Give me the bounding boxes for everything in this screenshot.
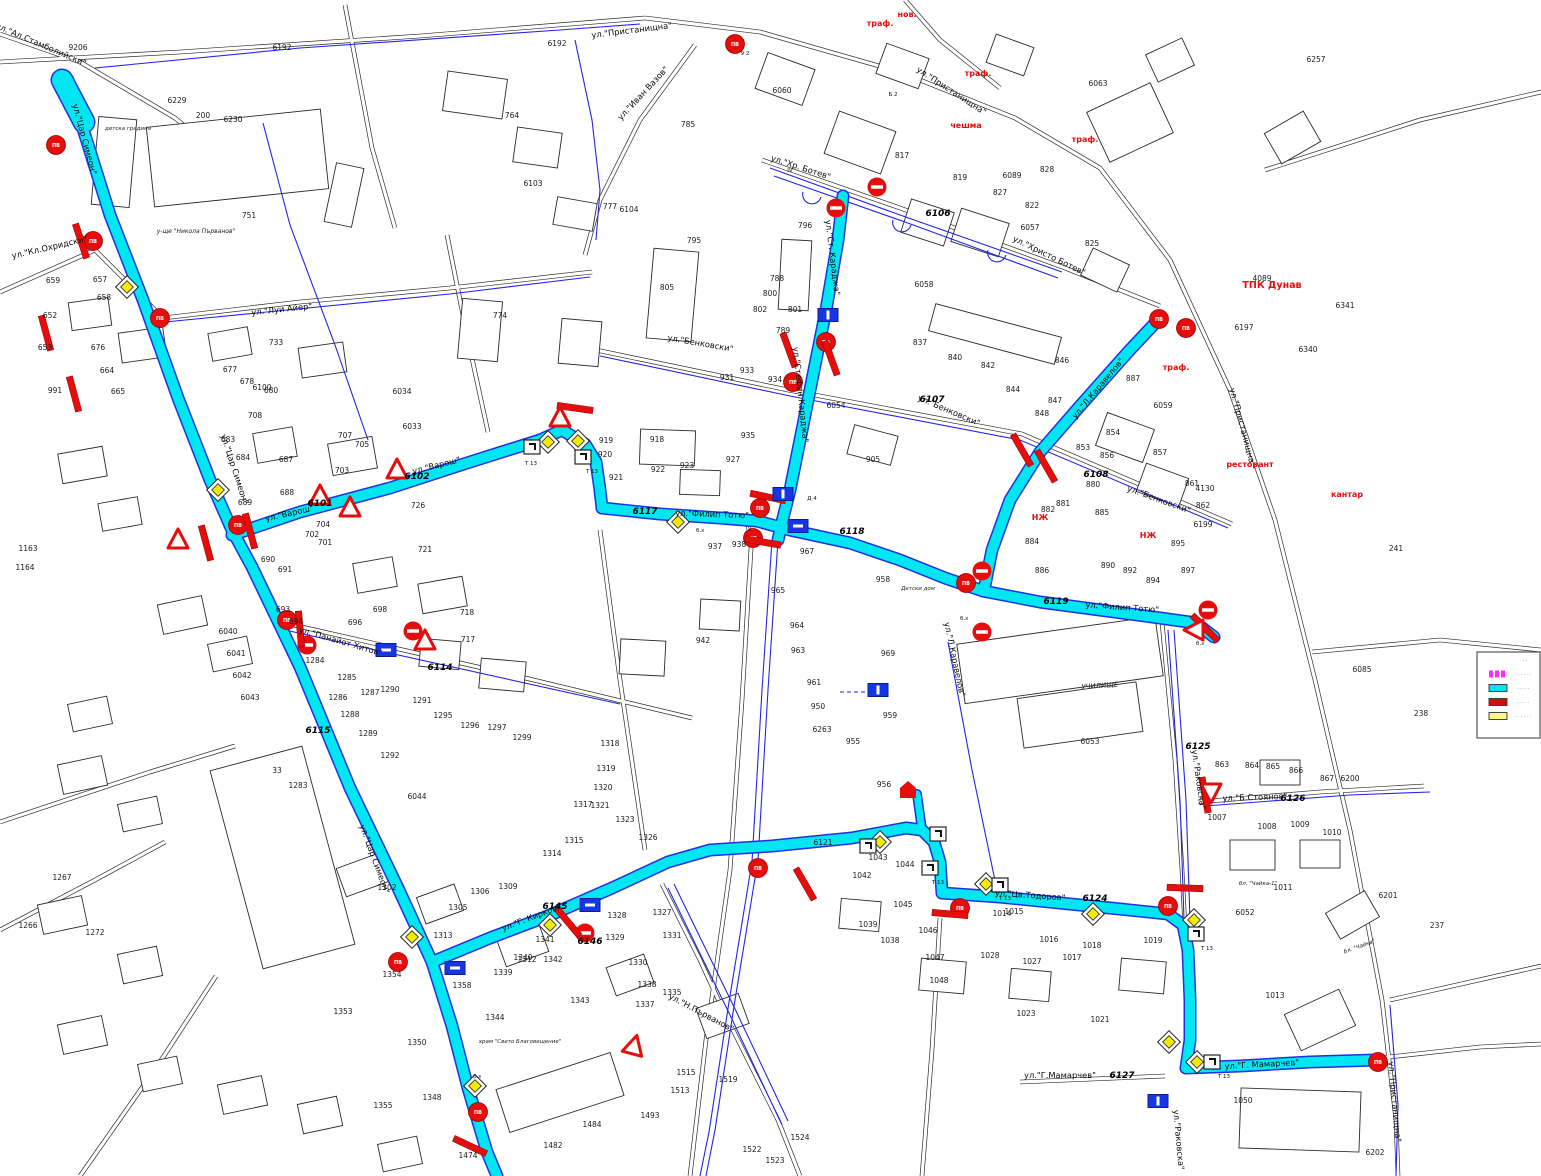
parcel-number: 1482: [543, 1141, 562, 1150]
utility-box-marker[interactable]: [788, 520, 808, 533]
micro-label: IV: [787, 168, 793, 174]
map-canvas[interactable]: ПВПВПВПВПВПВПВПВПВПВПВПВПВПВПВПВПВПВПВ92…: [0, 0, 1541, 1176]
parcel-number: 1009: [1290, 820, 1309, 829]
parcel-number: 1266: [18, 921, 37, 930]
utility-red-label: траф.: [867, 19, 894, 28]
pv-marker-label: ПВ: [394, 960, 402, 966]
parcel-number: 6089: [1002, 171, 1021, 180]
parcel-number: 864: [1245, 761, 1260, 770]
parcel-number: 6200: [1340, 774, 1359, 783]
parcel-number: 933: [740, 366, 755, 375]
parcel-number: 1289: [358, 729, 377, 738]
utility-red-label: НЖ: [1032, 513, 1049, 522]
hydrant-symbol[interactable]: [922, 861, 938, 875]
parcel-number: 1309: [498, 882, 517, 891]
parcel-number: 1353: [333, 1007, 352, 1016]
micro-label: Т 13: [998, 896, 1012, 902]
parcel-number: 6042: [232, 671, 251, 680]
parcel-number: 659: [46, 276, 61, 285]
parcel-number: 881: [1056, 499, 1071, 508]
parcel-number: 842: [981, 361, 996, 370]
parcel-number: 1329: [605, 933, 624, 942]
parcel-number: 1027: [1022, 957, 1041, 966]
parcel-number: 934: [768, 375, 783, 384]
parcel-number: 1013: [1265, 991, 1284, 1000]
parcel-number: 846: [1055, 356, 1070, 365]
utility-red-label: нов.: [897, 10, 916, 19]
parcel-number: 1290: [380, 685, 399, 694]
city-utility-map[interactable]: ПВПВПВПВПВПВПВПВПВПВПВПВПВПВПВПВПВПВПВ92…: [0, 0, 1541, 1176]
parcel-number: 1163: [18, 544, 37, 553]
parcel-number: 837: [913, 338, 928, 347]
parcel-number: 1323: [615, 815, 634, 824]
hydrant-pv-marker[interactable]: ПВ: [469, 1103, 488, 1122]
parcel-number: 1330: [628, 958, 647, 967]
parcel-number: 923: [680, 461, 695, 470]
parcel-number: 702: [305, 530, 320, 539]
parcel-number: 959: [883, 711, 898, 720]
parcel-number: 1023: [1016, 1009, 1035, 1018]
street-segment-id: 6127: [1109, 1071, 1135, 1081]
utility-box-marker[interactable]: [1148, 1095, 1168, 1108]
street-segment-id: 6106: [925, 209, 950, 219]
parcel-number: 241: [1389, 544, 1404, 553]
parcel-number: 1299: [512, 733, 531, 742]
utility-box-marker[interactable]: [580, 899, 600, 912]
parcel-number: 895: [1171, 539, 1186, 548]
parcel-number: 1314: [542, 849, 561, 858]
parcel-number: 892: [1123, 566, 1138, 575]
building: [1009, 968, 1051, 1001]
legend-item-label: · · · · · ·: [1515, 673, 1531, 678]
parcel-number: 1007: [1207, 813, 1226, 822]
hydrant-symbol[interactable]: [860, 839, 876, 853]
parcel-number: 1331: [662, 931, 681, 940]
parcel-number: 1048: [929, 976, 948, 985]
parcel-number: 1327: [652, 908, 671, 917]
parcel-number: 652: [43, 311, 58, 320]
parcel-number: 1306: [470, 887, 489, 896]
parcel-number: 964: [790, 621, 805, 630]
parcel-number: 1043: [868, 853, 887, 862]
parcel-number: 857: [1153, 448, 1168, 457]
parcel-number: 937: [708, 542, 723, 551]
parcel-number: 1493: [640, 1111, 659, 1120]
parcel-number: 6340: [1298, 345, 1317, 354]
parcel-number: 1484: [582, 1120, 601, 1129]
hydrant-pv-marker[interactable]: ПВ: [1369, 1053, 1388, 1072]
hydrant-symbol[interactable]: [930, 827, 946, 841]
parcel-number: 665: [111, 387, 126, 396]
building: [680, 469, 721, 495]
parcel-number: 774: [493, 311, 508, 320]
parcel-number: 1008: [1257, 822, 1276, 831]
hydrant-symbol[interactable]: [1188, 927, 1204, 941]
parcel-number: 921: [609, 473, 624, 482]
parcel-number: 819: [953, 173, 968, 182]
parcel-number: 885: [1095, 508, 1110, 517]
parcel-number: 862: [1196, 501, 1211, 510]
parcel-number: 1017: [1062, 953, 1081, 962]
parcel-number: 884: [1025, 537, 1040, 546]
hydrant-pv-marker[interactable]: ПВ: [749, 859, 768, 878]
parcel-number: 6033: [402, 422, 421, 431]
building: [479, 658, 526, 692]
parcel-number: 6052: [1235, 908, 1254, 917]
building: [646, 248, 699, 342]
no-entry-sign[interactable]: [1199, 601, 1218, 620]
parcel-number: 707: [338, 431, 353, 440]
hydrant-symbol[interactable]: [1204, 1055, 1220, 1069]
parcel-number: 701: [318, 538, 333, 547]
parcel-number: 1295: [433, 711, 452, 720]
parcel-number: 1039: [858, 920, 877, 929]
parcel-number: 1285: [337, 673, 356, 682]
legend-item-label: · · · · · ·: [1515, 715, 1531, 720]
parcel-number: 721: [418, 545, 433, 554]
utility-red-label: траф.: [1072, 135, 1099, 144]
parcel-number: 33: [272, 766, 282, 775]
parcel-number: 935: [741, 431, 756, 440]
building: [513, 127, 562, 168]
valve-bar-marker[interactable]: [1167, 884, 1203, 892]
place-label: детска градина: [104, 126, 152, 132]
no-entry-sign[interactable]: [973, 562, 992, 581]
parcel-number: 6199: [1193, 520, 1212, 529]
parcel-number: 6057: [1020, 223, 1039, 232]
parcel-number: 6230: [223, 115, 242, 124]
micro-label: Т 13: [1217, 1074, 1231, 1080]
parcel-number: 967: [800, 547, 815, 556]
pv-marker-label: ПВ: [1182, 326, 1190, 332]
parcel-number: 922: [651, 465, 666, 474]
pv-marker-label: ПВ: [1164, 904, 1172, 910]
parcel-number: 863: [1215, 760, 1230, 769]
street-segment-id: 6124: [1082, 894, 1107, 904]
parcel-number: 237: [1430, 921, 1445, 930]
parcel-number: 1524: [790, 1133, 809, 1142]
parcel-number: 687: [279, 455, 294, 464]
parcel-number: 1319: [596, 764, 615, 773]
parcel-number: 1288: [340, 710, 359, 719]
parcel-number: 828: [1040, 165, 1055, 174]
hydrant-pv-marker[interactable]: ПВ: [1150, 310, 1169, 329]
parcel-number: 887: [1126, 374, 1141, 383]
parcel-number: 1313: [433, 931, 452, 940]
parcel-number: 1019: [1143, 936, 1162, 945]
parcel-number: 6063: [1088, 79, 1107, 88]
parcel-number: 676: [91, 343, 106, 352]
parcel-number: 822: [1025, 201, 1040, 210]
street-segment-id: 6115: [305, 726, 330, 736]
parcel-number: 1038: [880, 936, 899, 945]
street-label: ул."Г.Мамарчев": [1024, 1070, 1096, 1080]
parcel-number: 1358: [452, 981, 471, 990]
legend-box: [1477, 652, 1540, 738]
parcel-number: 919: [599, 436, 614, 445]
parcel-number: 6104: [619, 205, 638, 214]
parcel-number: 955: [846, 737, 861, 746]
parcel-number: 1522: [742, 1145, 761, 1154]
utility-red-label: ресторант: [1226, 460, 1274, 469]
parcel-number: 956: [877, 780, 892, 789]
building: [1300, 840, 1340, 868]
parcel-number: 958: [876, 575, 891, 584]
parcel-number: 6043: [240, 693, 259, 702]
parcel-number: 718: [460, 608, 475, 617]
parcel-number: 6257: [1306, 55, 1325, 64]
parcel-number: 1042: [852, 871, 871, 880]
parcel-number: 726: [411, 501, 426, 510]
parcel-number: 6121: [813, 838, 832, 847]
parcel-number: 1047: [925, 953, 944, 962]
parcel-number: 1343: [570, 996, 589, 1005]
parcel-number: 1046: [918, 926, 937, 935]
parcel-number: 965: [771, 586, 786, 595]
parcel-number: 950: [811, 702, 826, 711]
building: [1119, 958, 1167, 994]
place-label: бл. "Чайка-1": [1239, 881, 1277, 887]
parcel-number: 1354: [382, 970, 401, 979]
parcel-number: 1341: [535, 935, 554, 944]
parcel-number: 1338: [637, 980, 656, 989]
parcel-number: 1519: [718, 1075, 737, 1084]
legend-item-label: · · · · ·: [1517, 687, 1530, 692]
legend-swatch: [1489, 713, 1507, 720]
hydrant-symbol[interactable]: [575, 450, 591, 464]
no-entry-sign[interactable]: [868, 178, 887, 197]
parcel-number: 1342: [543, 955, 562, 964]
legend-swatch: [1489, 685, 1507, 692]
parcel-number: 894: [1146, 576, 1161, 585]
parcel-number: 867: [1320, 774, 1335, 783]
pv-marker-label: ПВ: [1374, 1060, 1382, 1066]
hydrant-pv-marker[interactable]: ПВ: [1177, 319, 1196, 338]
micro-label: б.з: [960, 616, 968, 622]
parcel-number: 1317: [573, 800, 592, 809]
parcel-number: 825: [1085, 239, 1100, 248]
hydrant-symbol[interactable]: [524, 440, 540, 454]
parcel-number: 1297: [487, 723, 506, 732]
parcel-number: 6341: [1335, 301, 1354, 310]
pv-marker-label: ПВ: [474, 1110, 482, 1116]
network-segment: [917, 794, 922, 830]
utility-red-label: НЖ: [1140, 531, 1157, 540]
parcel-number: 853: [1076, 443, 1091, 452]
parcel-number: 866: [1289, 766, 1304, 775]
parcel-number: 704: [316, 520, 331, 529]
parcel-number: 1318: [600, 739, 619, 748]
parcel-number: 691: [278, 565, 293, 574]
pv-marker-label: ПВ: [89, 239, 97, 245]
parcel-number: 200: [196, 111, 211, 120]
no-entry-sign[interactable]: [973, 623, 992, 642]
building: [68, 297, 112, 330]
parcel-number: 827: [993, 188, 1008, 197]
parcel-number: 1344: [485, 1013, 504, 1022]
building: [353, 557, 398, 593]
parcel-number: 1021: [1090, 1015, 1109, 1024]
parcel-number: 961: [807, 678, 822, 687]
hydrant-pv-marker[interactable]: ПВ: [751, 499, 770, 518]
parcel-number: 788: [770, 274, 785, 283]
parcel-number: 840: [948, 353, 963, 362]
parcel-number: 1018: [1082, 941, 1101, 950]
parcel-number: 1287: [360, 688, 379, 697]
parcel-number: 796: [798, 221, 813, 230]
parcel-number: 802: [753, 305, 768, 314]
micro-label: Д 4: [807, 496, 817, 502]
parcel-number: 969: [881, 649, 896, 658]
hydrant-pv-marker[interactable]: ПВ: [47, 136, 66, 155]
parcel-number: 1337: [635, 1000, 654, 1009]
parcel-number: 920: [598, 450, 613, 459]
parcel-number: 1045: [893, 900, 912, 909]
utility-box-marker[interactable]: [773, 488, 793, 501]
parcel-number: 6263: [812, 725, 831, 734]
utility-box-marker[interactable]: [818, 309, 838, 322]
hydrant-pv-marker[interactable]: ПВ: [389, 953, 408, 972]
legend-swatch: [1489, 699, 1507, 706]
parcel-number: 1296: [460, 721, 479, 730]
parcel-number: 848: [1035, 409, 1050, 418]
parcel-number: 6202: [1365, 1148, 1384, 1157]
utility-red-label: траф.: [1163, 363, 1190, 372]
building: [558, 318, 602, 366]
place-label: у-ще "Никола Първанов": [156, 228, 236, 235]
parcel-number: 677: [223, 365, 238, 374]
parcel-number: 657: [93, 275, 108, 284]
parcel-number: 1339: [493, 968, 512, 977]
parcel-number: 1015: [1004, 907, 1023, 916]
pv-marker-label: ПВ: [956, 906, 964, 912]
pv-marker-label: ПВ: [1155, 317, 1163, 323]
micro-label: б.з: [1196, 641, 1204, 647]
micro-label: Б 2: [888, 92, 897, 98]
parcel-number: 6053: [1080, 737, 1099, 746]
utility-box-marker[interactable]: [445, 962, 465, 975]
street-segment-id: 6117: [632, 507, 658, 517]
parcel-number: 1321: [590, 801, 609, 810]
street-segment-id: 6118: [839, 527, 864, 537]
parcel-number: 6054: [826, 401, 845, 410]
parcel-number: 795: [687, 236, 702, 245]
parcel-number: 890: [1101, 561, 1116, 570]
parcel-number: 6100: [252, 383, 271, 392]
utility-red-label: ТПК Дунав: [1242, 280, 1301, 291]
parcel-number: 1513: [670, 1086, 689, 1095]
street-segment-id: 6119: [1043, 597, 1068, 607]
parcel-number: 905: [866, 455, 881, 464]
parcel-number: 1010: [1322, 828, 1341, 837]
pv-marker-label: ПВ: [756, 506, 764, 512]
street-segment-id: 6146: [577, 937, 602, 947]
parcel-number: 1326: [638, 833, 657, 842]
parcel-number: 6103: [523, 179, 542, 188]
pv-marker-label: ПВ: [962, 581, 970, 587]
hydrant-pv-marker[interactable]: ПВ: [957, 574, 976, 593]
parcel-number: 6040: [218, 627, 237, 636]
parcel-number: 1305: [448, 903, 467, 912]
parcel-number: 854: [1106, 428, 1121, 437]
parcel-number: 847: [1048, 396, 1063, 405]
parcel-number: 918: [650, 435, 665, 444]
pv-marker-label: ПВ: [52, 143, 60, 149]
parcel-number: 942: [696, 636, 711, 645]
utility-box-marker[interactable]: [868, 684, 888, 697]
parcel-number: 4130: [1195, 484, 1214, 493]
parcel-number: 1292: [380, 751, 399, 760]
utility-red-label: траф.: [965, 69, 992, 78]
building: [1239, 1088, 1361, 1152]
micro-label: 9 2: [741, 51, 750, 57]
parcel-number: 1267: [52, 873, 71, 882]
parcel-number: 1348: [422, 1093, 441, 1102]
parcel-number: 963: [791, 646, 806, 655]
parcel-number: 1515: [676, 1068, 695, 1077]
micro-label: Т 13: [931, 880, 945, 886]
pv-marker-label: ПВ: [234, 523, 242, 529]
parcel-number: 805: [660, 283, 675, 292]
parcel-number: 690: [261, 555, 276, 564]
legend-item-label: · · · · ·: [1517, 701, 1530, 706]
parcel-number: 6059: [1153, 401, 1172, 410]
parcel-number: 1050: [1233, 1096, 1252, 1105]
place-label: Детски дом: [900, 586, 935, 592]
pv-marker-label: ПВ: [731, 42, 739, 48]
parcel-number: 1328: [607, 911, 626, 920]
micro-label: б.з: [473, 1074, 481, 1080]
parcel-number: 6060: [772, 86, 791, 95]
hydrant-pv-marker[interactable]: ПВ: [151, 309, 170, 328]
parcel-number: 764: [505, 111, 520, 120]
building: [457, 298, 502, 361]
building: [298, 342, 347, 378]
parcel-number: 717: [461, 635, 476, 644]
micro-label: Ту: [744, 526, 752, 532]
pv-marker-label: ПВ: [754, 866, 762, 872]
parcel-number: 6085: [1352, 665, 1371, 674]
parcel-number: 777: [603, 202, 618, 211]
no-entry-sign[interactable]: [827, 199, 846, 218]
parcel-number: 1350: [407, 1038, 426, 1047]
parcel-number: 703: [335, 466, 350, 475]
parcel-number: 1291: [412, 696, 431, 705]
parcel-number: 1286: [328, 693, 347, 702]
parcel-number: 1355: [373, 1101, 392, 1110]
micro-label: Т 13: [1200, 946, 1214, 952]
street-segment-id: 6108: [1083, 470, 1108, 480]
building: [619, 639, 666, 676]
parcel-number: 1164: [15, 563, 34, 572]
parcel-number: 6201: [1378, 891, 1397, 900]
parcel-number: 886: [1035, 566, 1050, 575]
parcel-number: 1283: [288, 781, 307, 790]
parcel-number: 6034: [392, 387, 411, 396]
parcel-number: 688: [280, 488, 295, 497]
parcel-number: 1028: [980, 951, 999, 960]
parcel-number: 1315: [564, 836, 583, 845]
parcel-number: 865: [1266, 762, 1281, 771]
parcel-number: 664: [100, 366, 115, 375]
parcel-number: 696: [348, 618, 363, 627]
parcel-number: 693: [276, 605, 291, 614]
parcel-number: 733: [269, 338, 284, 347]
parcel-number: 991: [48, 386, 63, 395]
parcel-number: 1340: [513, 953, 532, 962]
building: [699, 599, 741, 631]
hydrant-pv-marker[interactable]: ПВ: [1159, 897, 1178, 916]
